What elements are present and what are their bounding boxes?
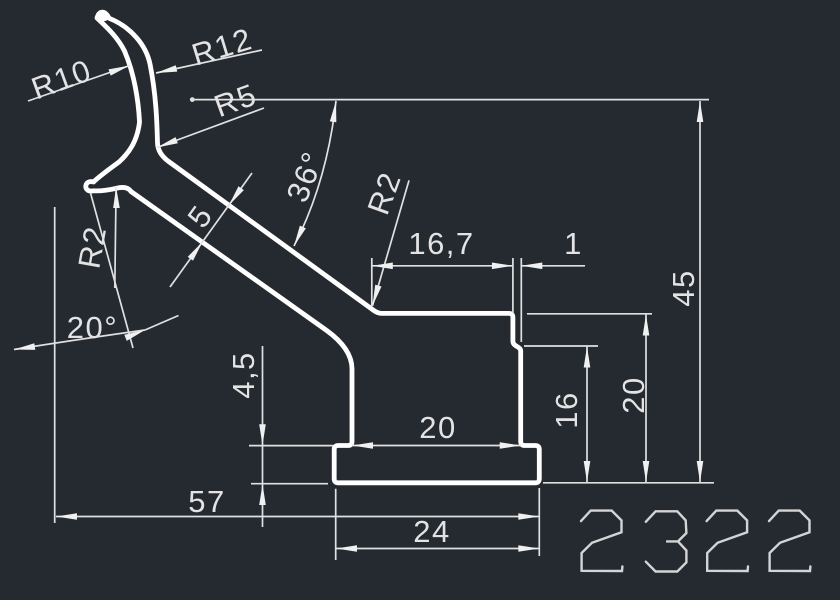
svg-text:4,5: 4,5: [226, 351, 261, 399]
svg-text:20: 20: [419, 410, 456, 445]
svg-text:R2: R2: [71, 223, 113, 271]
svg-text:36°: 36°: [279, 146, 331, 207]
svg-text:20: 20: [616, 376, 651, 413]
svg-text:20°: 20°: [67, 310, 118, 345]
svg-text:16: 16: [549, 391, 584, 428]
svg-text:R5: R5: [210, 77, 262, 124]
svg-text:57: 57: [188, 484, 225, 519]
svg-text:1: 1: [564, 226, 583, 261]
svg-text:R2: R2: [361, 167, 408, 219]
svg-text:R10: R10: [27, 52, 97, 106]
svg-text:24: 24: [413, 514, 450, 549]
svg-text:R12: R12: [188, 21, 257, 72]
svg-text:16,7: 16,7: [408, 226, 474, 261]
svg-text:45: 45: [666, 269, 701, 306]
